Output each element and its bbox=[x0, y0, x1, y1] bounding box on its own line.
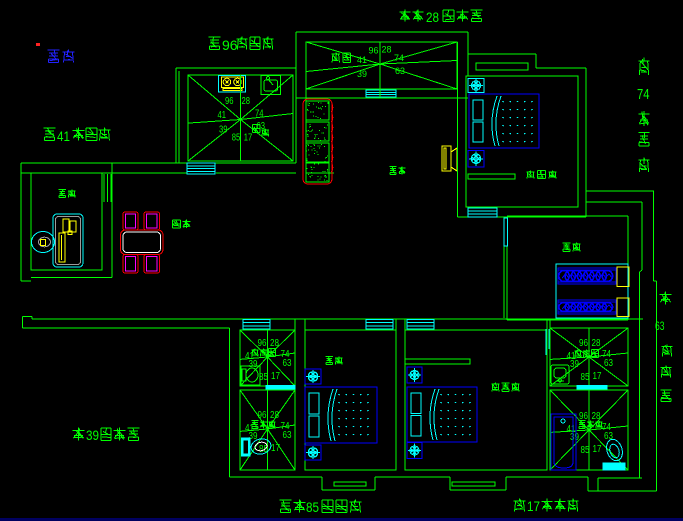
svg-text:63: 63 bbox=[283, 358, 292, 369]
svg-text:17: 17 bbox=[271, 371, 280, 382]
svg-text:63: 63 bbox=[655, 321, 665, 333]
svg-text:74: 74 bbox=[255, 109, 264, 120]
svg-text:39: 39 bbox=[570, 432, 579, 443]
svg-text:85: 85 bbox=[581, 445, 590, 456]
svg-text:96: 96 bbox=[258, 338, 267, 349]
svg-text:17: 17 bbox=[527, 499, 540, 514]
svg-text:39: 39 bbox=[570, 359, 579, 370]
svg-text:96: 96 bbox=[579, 338, 588, 349]
svg-text:28: 28 bbox=[270, 338, 279, 349]
svg-text:63: 63 bbox=[395, 66, 405, 77]
svg-text:63: 63 bbox=[283, 430, 292, 441]
svg-text:85: 85 bbox=[581, 372, 590, 383]
svg-text:28: 28 bbox=[382, 45, 392, 56]
svg-text:28: 28 bbox=[426, 10, 439, 25]
svg-text:28: 28 bbox=[242, 96, 251, 107]
svg-text:96: 96 bbox=[222, 37, 238, 53]
svg-text:96: 96 bbox=[369, 46, 379, 57]
svg-text:17: 17 bbox=[593, 371, 602, 382]
svg-text:41: 41 bbox=[57, 128, 70, 144]
svg-text:96: 96 bbox=[225, 96, 234, 107]
svg-text:28: 28 bbox=[270, 410, 279, 421]
svg-text:63: 63 bbox=[604, 358, 613, 369]
svg-text:74: 74 bbox=[394, 53, 404, 64]
svg-text:63: 63 bbox=[604, 431, 613, 442]
svg-text:39: 39 bbox=[86, 428, 99, 443]
svg-text:85: 85 bbox=[306, 500, 319, 515]
svg-text:85: 85 bbox=[232, 133, 241, 144]
svg-text:74: 74 bbox=[637, 87, 650, 103]
svg-text:17: 17 bbox=[244, 133, 253, 144]
svg-text:17: 17 bbox=[271, 443, 280, 454]
svg-text:17: 17 bbox=[593, 444, 602, 455]
svg-text:96: 96 bbox=[258, 410, 267, 421]
svg-text:41: 41 bbox=[218, 110, 227, 121]
svg-text:39: 39 bbox=[357, 69, 367, 80]
svg-text:39: 39 bbox=[219, 125, 228, 136]
svg-text:41: 41 bbox=[357, 55, 367, 66]
svg-text:28: 28 bbox=[592, 338, 601, 349]
